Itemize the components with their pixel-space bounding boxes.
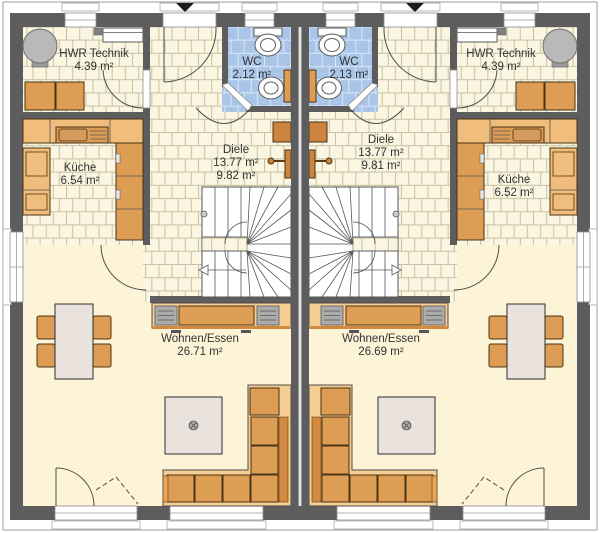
room-label-wohnen-left: Wohnen/Essen 26.71 m²	[161, 333, 239, 359]
floorplan: HWR Technik 4.39 m² WC 2.12 m² Diele 13.…	[0, 0, 600, 533]
floorplan-canvas	[0, 0, 600, 533]
room-label-hwr-right: HWR Technik 4.39 m²	[466, 48, 535, 74]
room-label-wohnen-right: Wohnen/Essen 26.69 m²	[342, 333, 420, 359]
room-label-hwr-left: HWR Technik 4.39 m²	[59, 48, 128, 74]
room-label-wc-left: WC 2.12 m²	[233, 56, 272, 82]
room-label-kueche-left: Küche 6.54 m²	[61, 162, 100, 188]
room-label-diele-right: Diele 13.77 m² 9.81 m²	[358, 134, 403, 173]
room-label-wc-right: WC 2.13 m²	[330, 56, 369, 82]
party-wall	[291, 13, 309, 520]
room-label-diele-left: Diele 13.77 m² 9.82 m²	[213, 144, 258, 183]
room-label-kueche-right: Küche 6.52 m²	[495, 174, 534, 200]
